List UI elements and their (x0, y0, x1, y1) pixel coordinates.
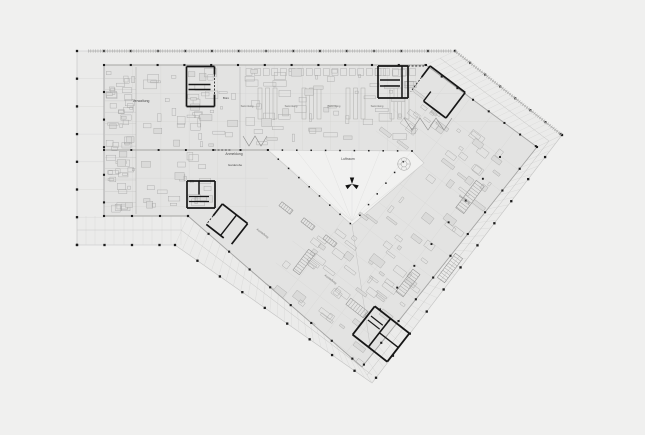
column-dot (103, 119, 105, 121)
column-dot (448, 221, 450, 223)
column-dot (249, 268, 251, 270)
column-dot (449, 255, 451, 257)
column-dot (308, 338, 310, 340)
column-dot (310, 150, 312, 152)
column-dot (510, 200, 512, 202)
room-label: Büro (223, 96, 230, 100)
column-dot (380, 342, 382, 344)
column-dot (317, 64, 319, 66)
column-dot (103, 215, 105, 217)
column-dot (354, 150, 356, 152)
column-dot (339, 150, 341, 152)
column-dot (431, 243, 433, 245)
column-dot (103, 91, 105, 93)
column-dot (493, 222, 495, 224)
column-dot (76, 133, 78, 135)
column-dot (396, 287, 398, 289)
column-dot (130, 64, 132, 66)
column-dot (519, 134, 521, 136)
column-dot (310, 322, 312, 324)
column-dot (158, 244, 160, 246)
column-dot (459, 266, 461, 268)
column-dot (467, 233, 469, 235)
column-dot (103, 64, 105, 66)
column-dot (157, 64, 159, 66)
column-dot (426, 310, 428, 312)
column-dot (290, 304, 292, 306)
column-dot (269, 286, 271, 288)
column-dot (76, 105, 78, 107)
column-dot (288, 168, 290, 170)
column-dot (488, 110, 490, 112)
column-dot (241, 291, 243, 293)
column-dot (103, 244, 105, 246)
floor-plan-page: VerwaltungBüroAnmeldungGarderobeLuftraum… (0, 0, 645, 435)
column-dot (103, 149, 105, 151)
column-dot (359, 215, 361, 217)
column-dot (331, 340, 333, 342)
column-dot (425, 64, 427, 66)
column-dot (456, 87, 458, 89)
column-dot (371, 64, 373, 66)
column-dot (103, 174, 105, 176)
column-dot (210, 64, 212, 66)
column-dot (409, 332, 411, 334)
column-dot (131, 215, 133, 217)
column-dot (392, 355, 394, 357)
column-dot (159, 215, 161, 217)
column-dot (331, 354, 333, 356)
column-dot (368, 150, 370, 152)
column-dot (131, 244, 133, 246)
column-dot (219, 275, 221, 277)
column-dot (103, 146, 105, 148)
column-dot (385, 182, 387, 184)
column-dot (411, 150, 413, 152)
column-dot (544, 156, 546, 158)
column-dot (376, 193, 378, 195)
column-dot (196, 260, 198, 262)
room-label: Garderobe (228, 163, 243, 167)
column-dot (375, 377, 377, 379)
column-dot (472, 99, 474, 101)
column-dot (76, 161, 78, 163)
column-dot (441, 76, 443, 78)
column-dot (353, 370, 355, 372)
column-dot (413, 265, 415, 267)
room-label: Sammlung (285, 104, 298, 108)
column-dot (103, 201, 105, 203)
column-dot (344, 64, 346, 66)
room-label: Verwaltung (133, 99, 150, 103)
column-dot (363, 364, 365, 366)
column-dot (501, 189, 503, 191)
column-dot (187, 215, 189, 217)
column-dot (484, 211, 486, 213)
column-dot (476, 244, 478, 246)
column-dot (291, 64, 293, 66)
column-dot (415, 298, 417, 300)
column-dot (158, 149, 160, 151)
column-dot (351, 358, 353, 360)
room-label: Sammlung (371, 104, 384, 108)
column-dot (398, 64, 400, 66)
column-dot (382, 150, 384, 152)
column-dot (237, 64, 239, 66)
room-label: Luftraum (341, 157, 355, 161)
column-dot (499, 156, 501, 158)
column-dot (443, 288, 445, 290)
column-dot (329, 204, 331, 206)
column-dot (527, 178, 529, 180)
column-dot (267, 149, 269, 151)
column-dot (519, 168, 521, 170)
column-dot (264, 307, 266, 309)
column-dot (282, 149, 284, 151)
column-dot (76, 78, 78, 80)
column-dot (212, 149, 214, 151)
column-dot (339, 214, 341, 216)
column-dot (174, 244, 176, 246)
column-dot (308, 186, 310, 188)
column-dot (397, 150, 399, 152)
column-dot (368, 204, 370, 206)
column-dot (185, 149, 187, 151)
room-label: Sammlung (328, 104, 341, 108)
column-dot (278, 158, 280, 160)
floor-plan-drawing: VerwaltungBüroAnmeldungGarderobeLuftraum… (0, 0, 645, 435)
column-dot (76, 216, 78, 218)
column-dot (76, 244, 78, 246)
column-dot (228, 251, 230, 253)
column-dot (183, 64, 185, 66)
column-dot (298, 177, 300, 179)
column-dot (76, 188, 78, 190)
column-dot (207, 233, 209, 235)
column-dot (325, 150, 327, 152)
column-dot (240, 149, 242, 151)
column-dot (503, 122, 505, 124)
column-dot (76, 50, 78, 52)
column-dot (398, 320, 400, 322)
column-dot (394, 172, 396, 174)
column-dot (350, 223, 352, 225)
column-dot (482, 178, 484, 180)
column-dot (264, 64, 266, 66)
room-label: Anmeldung (225, 152, 242, 156)
column-dot (319, 195, 321, 197)
column-dot (536, 146, 538, 148)
column-dot (432, 276, 434, 278)
column-dot (296, 149, 298, 151)
column-dot (379, 308, 381, 310)
room-label: Sammlung (241, 104, 254, 108)
column-dot (286, 322, 288, 324)
column-dot (130, 149, 132, 151)
